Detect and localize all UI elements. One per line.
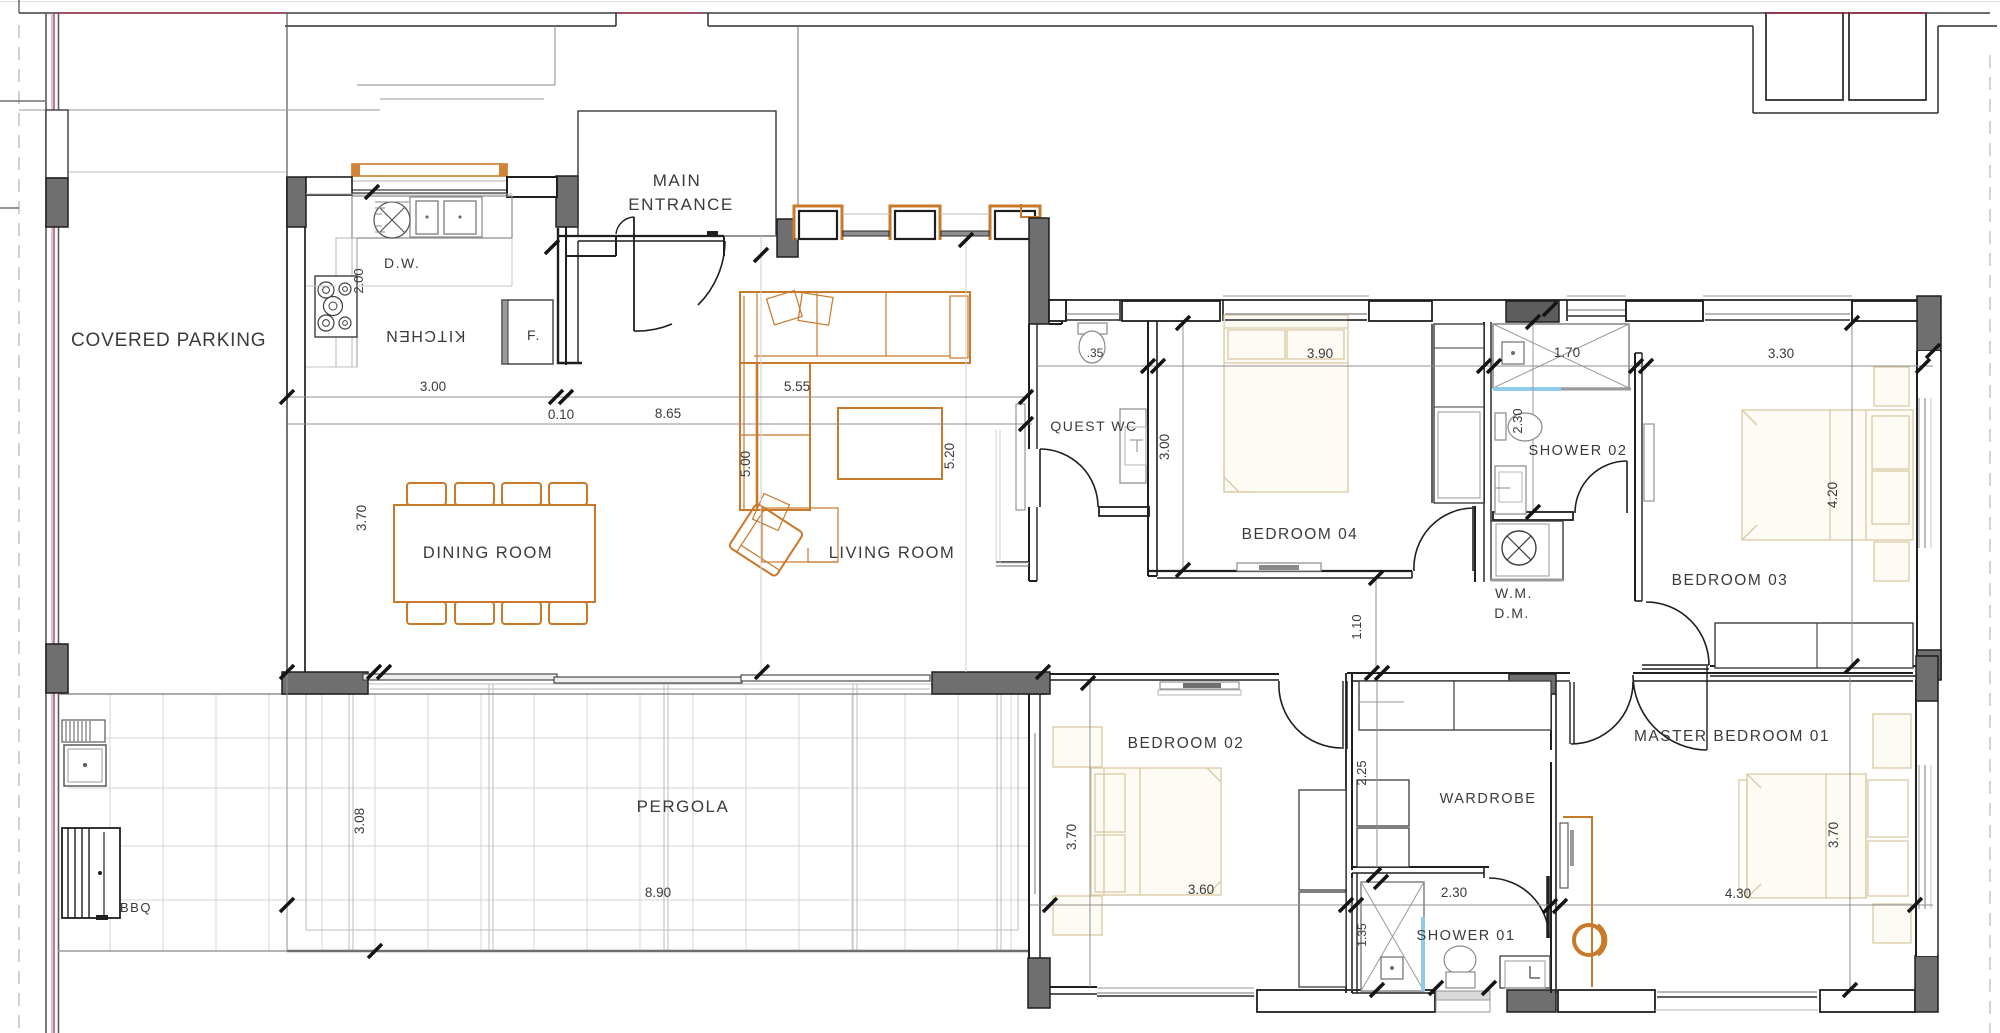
svg-text:3.00: 3.00 xyxy=(1157,434,1172,460)
svg-text:1.70: 1.70 xyxy=(1554,345,1580,360)
svg-text:3.70: 3.70 xyxy=(1826,822,1841,848)
svg-text:5.20: 5.20 xyxy=(942,443,957,469)
svg-text:BBQ: BBQ xyxy=(120,900,152,915)
svg-text:0.10: 0.10 xyxy=(548,407,574,422)
svg-text:.35: .35 xyxy=(1087,346,1104,360)
svg-text:5.55: 5.55 xyxy=(784,379,810,394)
svg-text:8.65: 8.65 xyxy=(655,406,681,421)
svg-text:MAIN: MAIN xyxy=(653,171,702,190)
svg-text:2.00: 2.00 xyxy=(351,268,366,293)
svg-text:WARDROBE: WARDROBE xyxy=(1440,791,1537,807)
svg-text:DINING ROOM: DINING ROOM xyxy=(423,544,553,562)
svg-text:4.20: 4.20 xyxy=(1825,482,1840,508)
svg-text:D.M.: D.M. xyxy=(1494,605,1530,621)
svg-text:W.M.: W.M. xyxy=(1495,585,1533,601)
svg-text:BEDROOM 02: BEDROOM 02 xyxy=(1128,735,1245,752)
svg-text:1.35: 1.35 xyxy=(1355,923,1369,947)
svg-text:3.70: 3.70 xyxy=(1064,824,1079,850)
svg-text:MASTER BEDROOM 01: MASTER BEDROOM 01 xyxy=(1634,728,1830,745)
svg-text:PERGOLA: PERGOLA xyxy=(637,797,730,816)
svg-text:3.90: 3.90 xyxy=(1307,346,1333,361)
svg-text:SHOWER 02: SHOWER 02 xyxy=(1529,443,1628,459)
svg-text:4.30: 4.30 xyxy=(1725,886,1751,901)
svg-text:F.: F. xyxy=(527,327,541,343)
svg-text:3.70: 3.70 xyxy=(354,505,369,531)
svg-text:KITCHEN: KITCHEN xyxy=(385,327,466,344)
svg-text:2.25: 2.25 xyxy=(1354,760,1369,785)
svg-text:8.90: 8.90 xyxy=(645,885,671,900)
svg-text:3.60: 3.60 xyxy=(1188,882,1214,897)
svg-text:LIVING ROOM: LIVING ROOM xyxy=(829,544,956,562)
svg-text:3.30: 3.30 xyxy=(1768,346,1794,361)
svg-text:QUEST WC: QUEST WC xyxy=(1050,418,1137,434)
svg-text:3.08: 3.08 xyxy=(352,808,367,834)
svg-text:1.10: 1.10 xyxy=(1349,614,1364,639)
svg-text:BEDROOM 03: BEDROOM 03 xyxy=(1672,572,1789,589)
svg-text:2.30: 2.30 xyxy=(1441,885,1467,900)
svg-text:D.W.: D.W. xyxy=(384,255,420,271)
svg-text:BEDROOM 04: BEDROOM 04 xyxy=(1242,526,1359,543)
svg-text:5.00: 5.00 xyxy=(738,451,753,477)
svg-text:SHOWER 01: SHOWER 01 xyxy=(1417,928,1516,944)
svg-text:ENTRANCE: ENTRANCE xyxy=(628,195,734,214)
svg-text:COVERED PARKING: COVERED PARKING xyxy=(71,330,266,351)
svg-text:2.30: 2.30 xyxy=(1510,408,1525,433)
svg-text:3.00: 3.00 xyxy=(420,379,446,394)
